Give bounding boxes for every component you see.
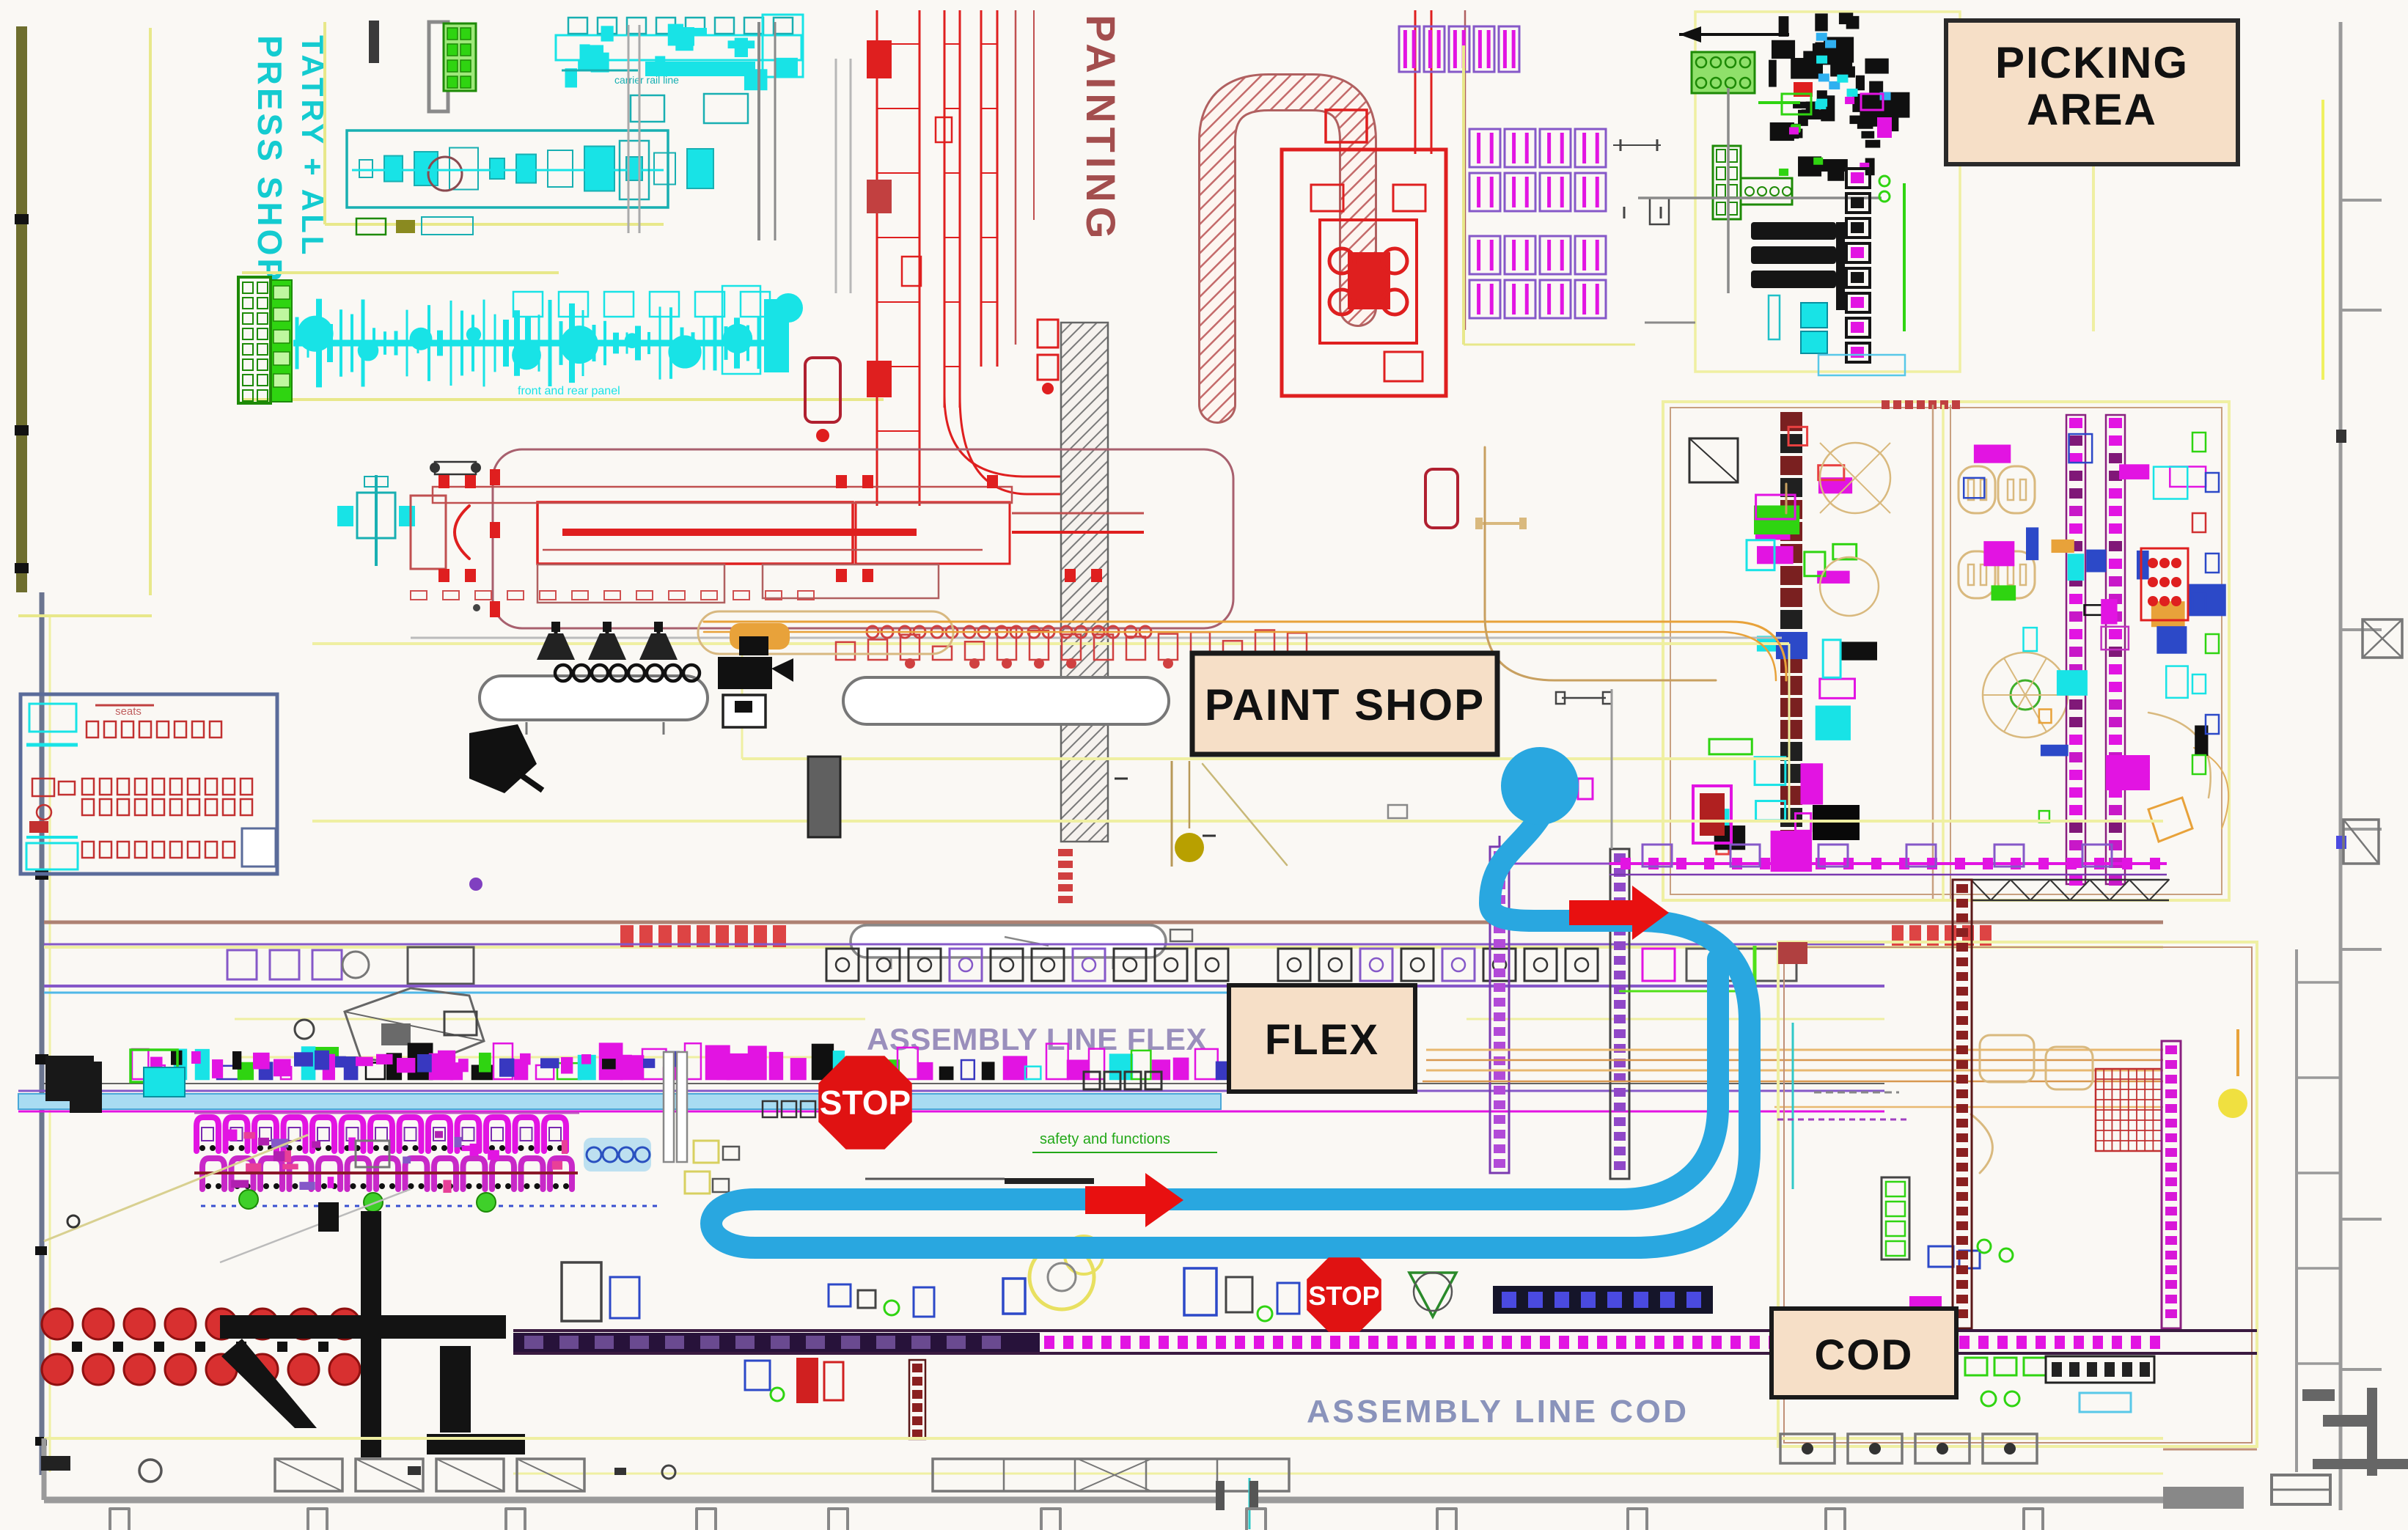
svg-text:seats: seats <box>115 705 142 718</box>
svg-text:PAINTING: PAINTING <box>1078 15 1124 243</box>
svg-text:STOP: STOP <box>820 1084 911 1122</box>
svg-text:carrier rail line: carrier rail line <box>614 74 679 86</box>
svg-text:PICKING: PICKING <box>1995 38 2189 87</box>
svg-text:PAINT SHOP: PAINT SHOP <box>1205 680 1485 729</box>
svg-text:safety and functions: safety and functions <box>1040 1131 1170 1147</box>
svg-text:PRESS SHOP: PRESS SHOP <box>251 35 289 284</box>
svg-text:ASSEMBLY LINE COD: ASSEMBLY LINE COD <box>1307 1394 1689 1430</box>
svg-text:COD: COD <box>1815 1331 1914 1379</box>
svg-text:AREA: AREA <box>2027 85 2157 134</box>
svg-text:FLEX: FLEX <box>1265 1016 1379 1064</box>
svg-text:STOP: STOP <box>1308 1281 1379 1311</box>
svg-text:front and rear panel: front and rear panel <box>518 385 620 397</box>
